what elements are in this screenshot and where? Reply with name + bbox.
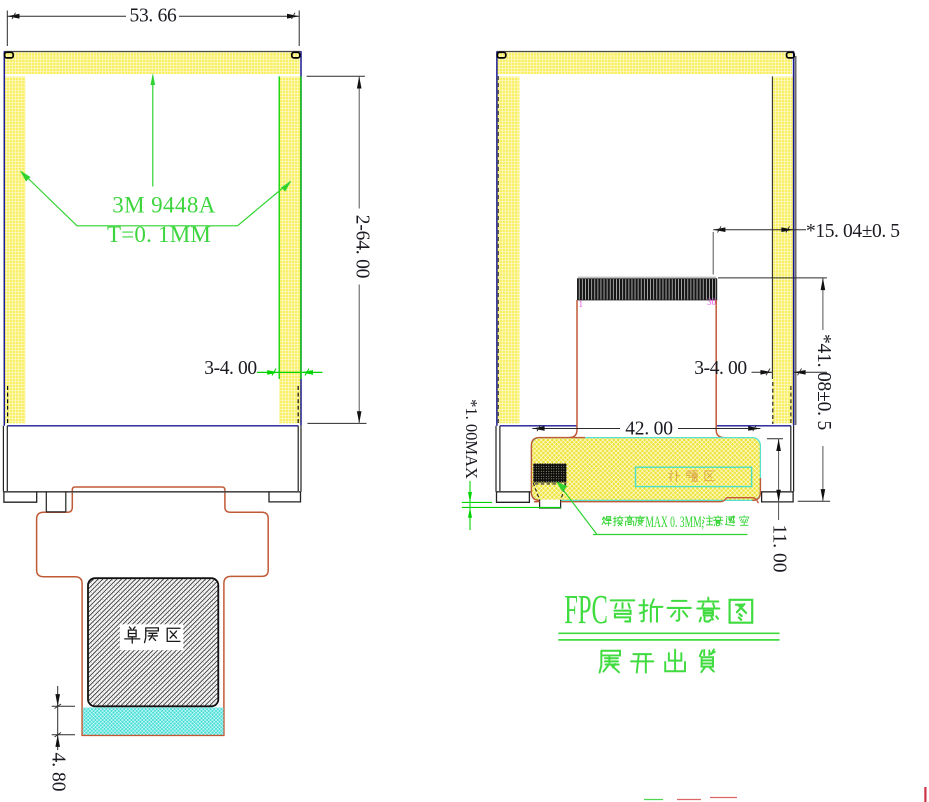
svg-text:*1. 00MAX: *1. 00MAX [462, 399, 481, 479]
svg-text:4. 80: 4. 80 [48, 753, 69, 792]
svg-text:3M 9448A: 3M 9448A [112, 193, 216, 218]
svg-text:*41. 08±0. 5: *41. 08±0. 5 [813, 334, 834, 430]
svg-text:11. 00: 11. 00 [769, 524, 790, 572]
svg-text:2-64. 00: 2-64. 00 [352, 215, 373, 278]
svg-text:1: 1 [579, 299, 584, 309]
svg-text:53. 66: 53. 66 [130, 5, 178, 26]
svg-text:T=0. 1MM: T=0. 1MM [107, 222, 211, 247]
svg-text:MAX 0. 3MM,: MAX 0. 3MM, [645, 514, 704, 531]
svg-text:*15. 04±0. 5: *15. 04±0. 5 [806, 221, 900, 242]
svg-text:30: 30 [707, 297, 717, 307]
svg-text:FPC: FPC [564, 588, 608, 633]
svg-text:42. 00: 42. 00 [625, 419, 673, 440]
svg-text:3-4. 00: 3-4. 00 [694, 358, 746, 379]
svg-text:3-4. 00: 3-4. 00 [204, 358, 256, 379]
